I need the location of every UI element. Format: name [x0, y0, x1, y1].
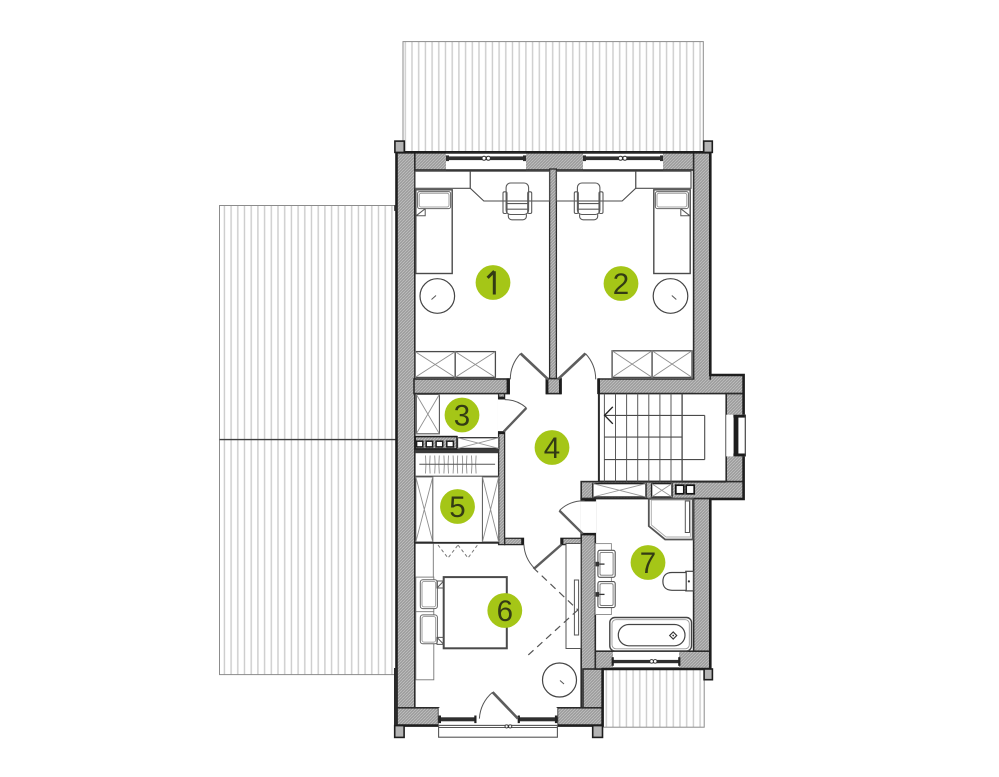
- svg-text:7: 7: [640, 547, 656, 580]
- svg-text:6: 6: [497, 595, 513, 628]
- svg-text:5: 5: [449, 491, 465, 524]
- svg-text:3: 3: [454, 399, 470, 432]
- svg-text:4: 4: [544, 432, 560, 465]
- svg-text:2: 2: [613, 268, 629, 301]
